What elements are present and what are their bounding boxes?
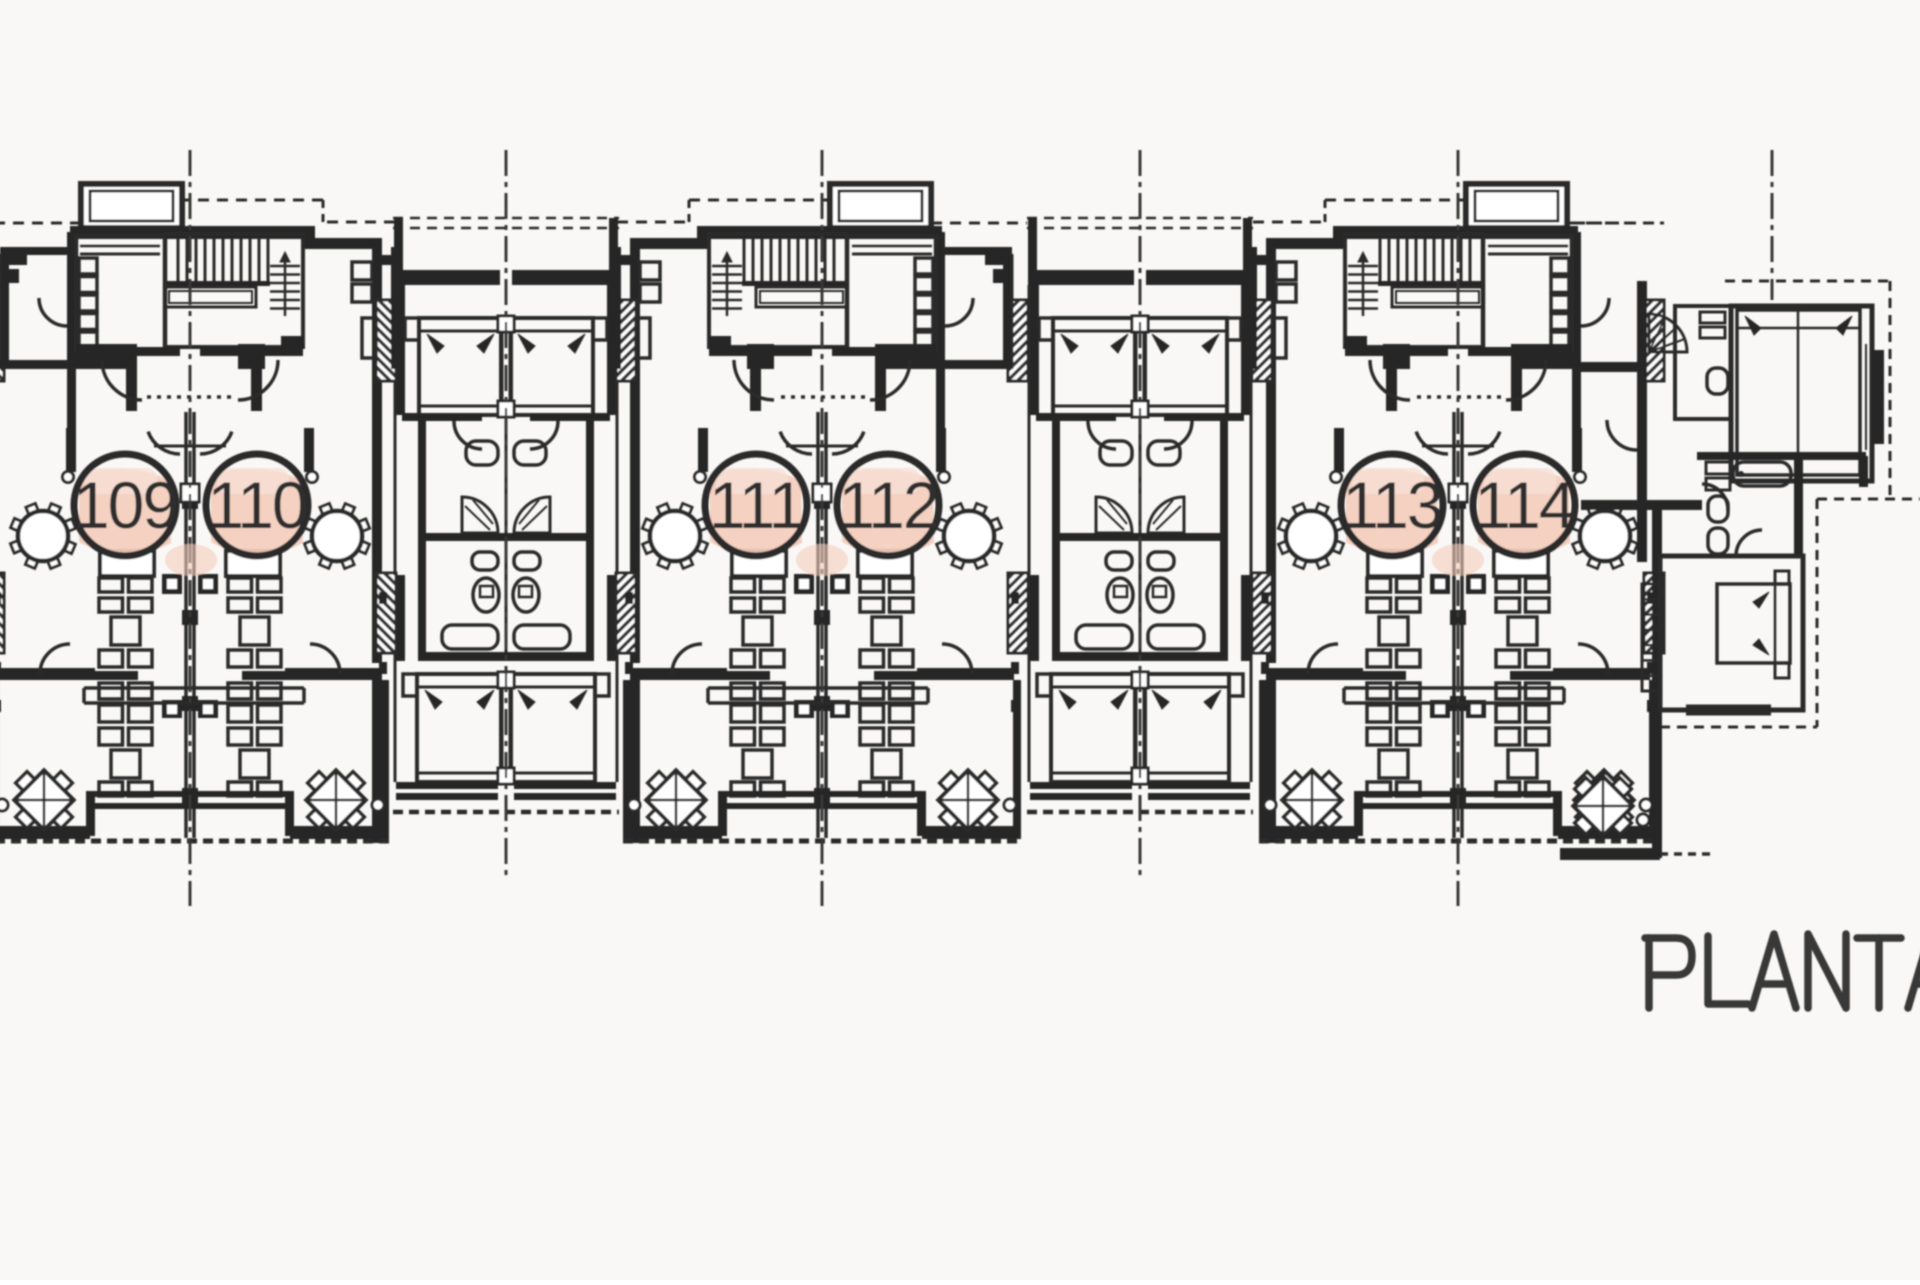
svg-text:113: 113: [1342, 468, 1441, 542]
svg-text:114: 114: [1474, 468, 1574, 542]
svg-text:109: 109: [73, 468, 177, 542]
svg-text:112: 112: [838, 468, 937, 542]
svg-text:111: 111: [709, 468, 803, 542]
svg-text:110: 110: [207, 468, 307, 542]
